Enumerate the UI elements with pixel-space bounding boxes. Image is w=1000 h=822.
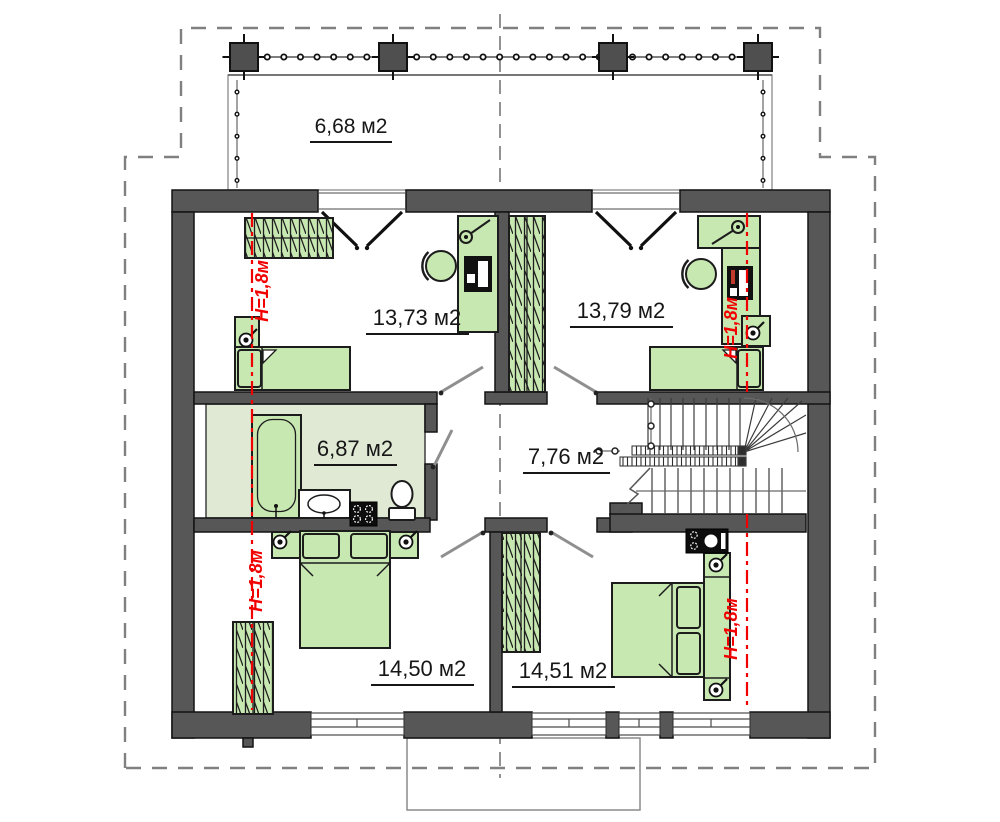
stair-handrail-lower — [620, 457, 744, 466]
pillow — [351, 534, 387, 558]
balcony-area-label: 6,68 м2 — [315, 115, 388, 138]
stair-rail-extension — [597, 398, 651, 451]
washing-machine — [350, 502, 377, 526]
height-label-top-right: Н=1,8м — [721, 297, 741, 359]
furniture-bedroom-top-left — [235, 216, 498, 390]
bedroom-top-left-area-label: 13,73 м2 — [373, 305, 462, 330]
floor-plan-drawing: Н=1,8м Н=1,8м Н=1,8м Н=1,8м 6,68 м2 13,7… — [0, 0, 1000, 822]
height-label-bottom-left: Н=1,8м — [246, 550, 266, 612]
stair-winder-treads — [744, 398, 806, 452]
staircase — [596, 398, 806, 513]
door-leaf-bedroom-top-right — [554, 367, 596, 392]
computer-icon — [727, 266, 753, 300]
pillow — [738, 350, 760, 387]
porch-outline — [407, 738, 640, 810]
desk-chair — [682, 259, 716, 289]
pillow — [238, 350, 261, 387]
floor-plan-page: Н=1,8м Н=1,8м Н=1,8м Н=1,8м 6,68 м2 13,7… — [0, 0, 1000, 822]
pillow — [303, 534, 339, 558]
hall-area-label: 7,76 м2 — [528, 444, 604, 469]
desk-chair — [422, 251, 456, 281]
wall-stub-mark — [243, 738, 253, 747]
toilet — [389, 481, 415, 520]
door-leaf-bedroom-bottom-left — [441, 532, 483, 557]
pillow — [677, 587, 700, 628]
door-leaf-bedroom-bottom-right — [551, 532, 593, 557]
height-label-top-left: Н=1,8м — [252, 260, 272, 322]
door-leaf-bedroom-top-left — [441, 367, 483, 392]
stair-upper-treads — [648, 398, 740, 450]
bedroom-bottom-left-area-label: 14,50 м2 — [378, 656, 467, 681]
computer-icon — [464, 256, 492, 292]
bathroom-area-label: 6,87 м2 — [317, 436, 393, 461]
sink-basin — [308, 495, 340, 513]
pillow — [677, 633, 700, 674]
door-leaf-bathroom — [433, 430, 452, 468]
tv-appliance — [686, 529, 728, 553]
bedroom-bottom-right-area-label: 14,51 м2 — [519, 658, 608, 683]
bedroom-top-right-area-label: 13,79 м2 — [577, 298, 666, 323]
height-label-bottom-right: Н=1,8м — [721, 598, 741, 660]
